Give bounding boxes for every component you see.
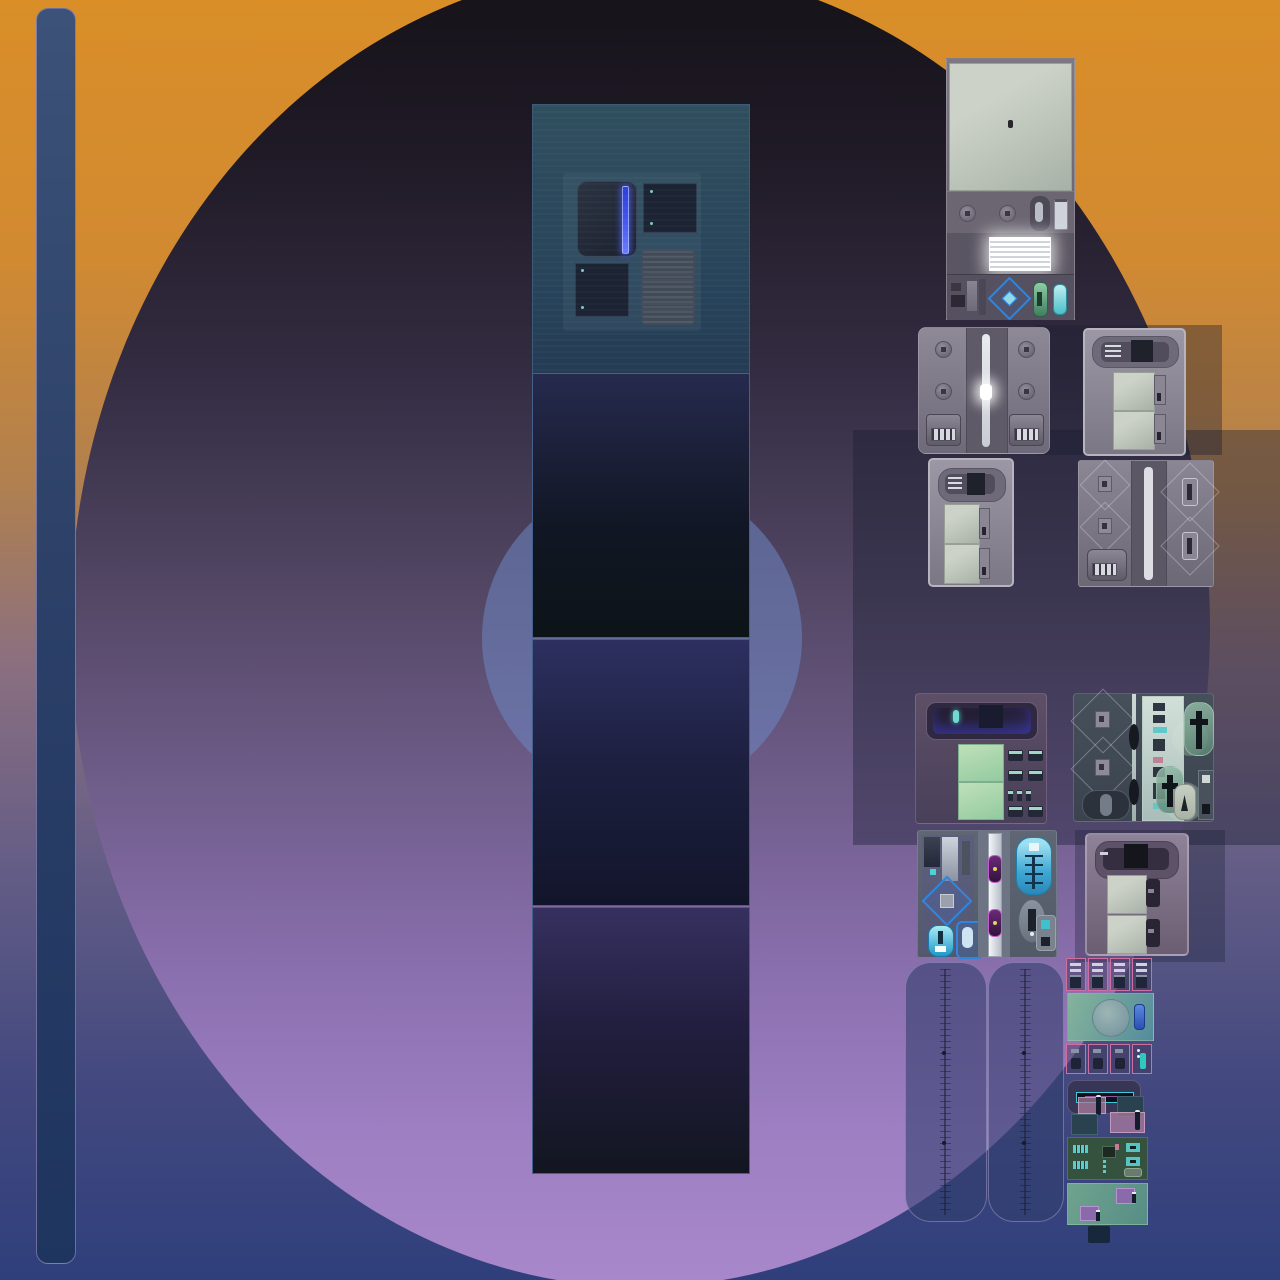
- bolt-icon: [1018, 383, 1035, 400]
- vertical-slot: [1182, 478, 1198, 506]
- green-capsule: [1033, 282, 1048, 317]
- device-sprite-group: [563, 173, 701, 331]
- seam-dot: [942, 1051, 946, 1055]
- board-connector: [1073, 1145, 1088, 1153]
- component: [1153, 739, 1165, 751]
- slot-dark-square: [1124, 844, 1148, 868]
- slot-lines: [948, 477, 962, 489]
- indicator-dot: [650, 222, 653, 225]
- device-square-bottom: [575, 263, 629, 317]
- purple-chip: [1080, 1206, 1099, 1221]
- panel-navy: [532, 373, 750, 638]
- circuit-board: [1067, 1137, 1148, 1180]
- teal-capsule: [1053, 284, 1067, 315]
- bolt-square: [1095, 711, 1110, 728]
- latch-component: [1087, 549, 1127, 581]
- indicator-dot: [581, 269, 584, 272]
- board-dots: [1103, 1160, 1106, 1163]
- magenta-knob: [988, 855, 1002, 883]
- pill-component: [1082, 790, 1130, 820]
- green-circle-panel: [1067, 993, 1154, 1041]
- small-dark-block: [1088, 1226, 1110, 1243]
- switch: [1028, 770, 1043, 781]
- dark-knob: [1129, 779, 1139, 805]
- sage-panel: [1113, 411, 1155, 450]
- component: [1153, 703, 1165, 711]
- pink-switch: [1088, 958, 1108, 991]
- knob: [1008, 790, 1013, 801]
- sage-panel: [1113, 372, 1155, 411]
- slab-seam: [940, 969, 951, 1215]
- material-plate: [949, 63, 1072, 191]
- cyan-capsule: [928, 925, 954, 957]
- widget: [924, 837, 940, 867]
- machine-diamond-columns: [1078, 460, 1214, 587]
- bottle-capsule: [1174, 784, 1196, 820]
- cross-capsule: [1184, 702, 1214, 756]
- component: [1153, 757, 1163, 763]
- top-slot: [1095, 841, 1179, 879]
- bright-vent-light: [989, 237, 1051, 271]
- slot-dark-square: [967, 473, 985, 495]
- machine-slot-small: [1083, 328, 1186, 456]
- switch: [1028, 806, 1043, 817]
- bolt-icon: [935, 341, 952, 358]
- pink-knob: [1110, 1044, 1130, 1074]
- pink-switch: [1110, 958, 1130, 991]
- pink-switch: [1066, 958, 1086, 991]
- panel-indigo: [532, 639, 750, 906]
- indicator-dot: [650, 190, 653, 193]
- switch: [1028, 750, 1043, 761]
- center-track: [966, 328, 1008, 453]
- vent-band: [947, 233, 1074, 274]
- pink-knob-teal: [1132, 1044, 1152, 1074]
- chip-panel: [1067, 1183, 1148, 1225]
- side-latch: [1154, 414, 1166, 444]
- side-latch: [1146, 919, 1160, 947]
- knob: [1017, 790, 1022, 801]
- side-latch: [979, 548, 990, 579]
- cyan-grid-capsule: [1016, 837, 1052, 895]
- plate-dot: [1008, 120, 1013, 128]
- sage-panel: [944, 504, 980, 544]
- light-strip: [982, 334, 990, 447]
- latch-component: [926, 414, 961, 446]
- widget: [942, 837, 958, 881]
- seam-dot: [942, 1141, 946, 1145]
- machine-teal-cross-capsules: [1073, 693, 1214, 822]
- device-square-top: [643, 183, 697, 233]
- machine-foot-band: [947, 274, 1074, 320]
- component: [1153, 727, 1167, 733]
- mint-panel: [958, 744, 1004, 782]
- widget: [962, 841, 970, 875]
- pink-switch: [1132, 958, 1152, 991]
- machine-slot-vertical: [928, 458, 1014, 587]
- top-slot: [938, 468, 1006, 502]
- board-chip: [1102, 1146, 1116, 1158]
- teal-dot: [930, 869, 936, 875]
- pin-connector: [1110, 1112, 1145, 1133]
- center-track: [978, 831, 1010, 957]
- tab-component: [1054, 199, 1068, 230]
- top-slot: [1092, 336, 1179, 368]
- pin-connector: [1078, 1097, 1106, 1114]
- panel-circle: [1092, 999, 1130, 1037]
- widget: [951, 283, 961, 291]
- center-track: [1131, 461, 1167, 586]
- sprite-atlas-scene: [0, 0, 1280, 1280]
- blue-diamond-outline: [922, 876, 973, 927]
- tall-slab: [905, 962, 987, 1222]
- widget: [967, 281, 977, 311]
- right-mini-panel: [1036, 915, 1056, 951]
- panel-violet: [532, 907, 750, 1174]
- bolt-square: [1098, 476, 1112, 492]
- machine-mid-band: [947, 191, 1074, 234]
- bolt-icon: [1018, 341, 1035, 358]
- sage-panel: [944, 544, 980, 584]
- machine-bolted-light-track: [918, 327, 1050, 454]
- widget: [951, 295, 965, 307]
- board-capsule: [1124, 1168, 1142, 1177]
- blue-diamond-outline: [988, 277, 1032, 321]
- side-latch: [979, 508, 990, 539]
- machine-purple-mint-switches: [915, 693, 1047, 824]
- slot-dark-square: [1131, 340, 1153, 362]
- switch: [1008, 806, 1023, 817]
- device-ribbed: [641, 249, 695, 325]
- bolt-square: [1095, 759, 1110, 776]
- sage-panel: [1107, 915, 1147, 954]
- pink-knob: [1066, 1044, 1086, 1074]
- mint-panel: [958, 782, 1004, 820]
- indicator-dot: [581, 306, 584, 309]
- purple-chip: [1116, 1188, 1135, 1204]
- dark-square: [1071, 1114, 1098, 1135]
- glow-strip: [622, 186, 629, 254]
- bolt-icon: [935, 383, 952, 400]
- right-mini-panel: [1198, 770, 1214, 820]
- machine-blue-highlights: [917, 830, 1057, 958]
- tall-slab: [988, 962, 1064, 1222]
- switch: [1008, 770, 1023, 781]
- bolt-square: [1098, 518, 1112, 534]
- seam-dot: [1022, 1141, 1026, 1145]
- blue-capsule: [1134, 1004, 1145, 1030]
- component: [1153, 715, 1165, 723]
- pink-knob: [1088, 1044, 1108, 1074]
- board-tick: [1115, 1144, 1119, 1150]
- teal-indicator: [953, 710, 959, 723]
- knob: [1026, 790, 1031, 801]
- board-block: [1126, 1157, 1140, 1166]
- magenta-knob: [988, 909, 1002, 937]
- board-connector: [1073, 1161, 1088, 1169]
- light-strip: [1144, 467, 1153, 580]
- panel-teal: [532, 104, 750, 374]
- top-slot: [926, 702, 1038, 740]
- side-latch: [1154, 375, 1166, 405]
- vertical-slot: [1182, 532, 1198, 560]
- machine-slot-purple: [1085, 833, 1189, 956]
- slot-lines: [1105, 345, 1121, 357]
- side-latch: [1146, 879, 1160, 907]
- sage-panel: [1107, 875, 1147, 914]
- bolt-icon: [959, 205, 976, 222]
- device-rounded-with-glow-strip: [577, 181, 637, 257]
- machine-tall-plate-vent: [946, 58, 1075, 320]
- pill-component: [1029, 195, 1051, 232]
- slab-seam: [1020, 969, 1031, 1215]
- widget: [979, 279, 986, 315]
- dark-knob: [1129, 724, 1139, 750]
- board-block: [1126, 1143, 1140, 1152]
- seam-dot: [1022, 1051, 1026, 1055]
- latch-component: [1009, 414, 1044, 446]
- vertical-bar-sprite: [36, 8, 76, 1264]
- left-panel: [922, 835, 974, 953]
- slot-tick: [1100, 852, 1108, 855]
- switch: [1008, 750, 1023, 761]
- bolt-icon: [999, 205, 1016, 222]
- slot-dark-square: [979, 705, 1003, 728]
- white-strip: [988, 833, 1002, 957]
